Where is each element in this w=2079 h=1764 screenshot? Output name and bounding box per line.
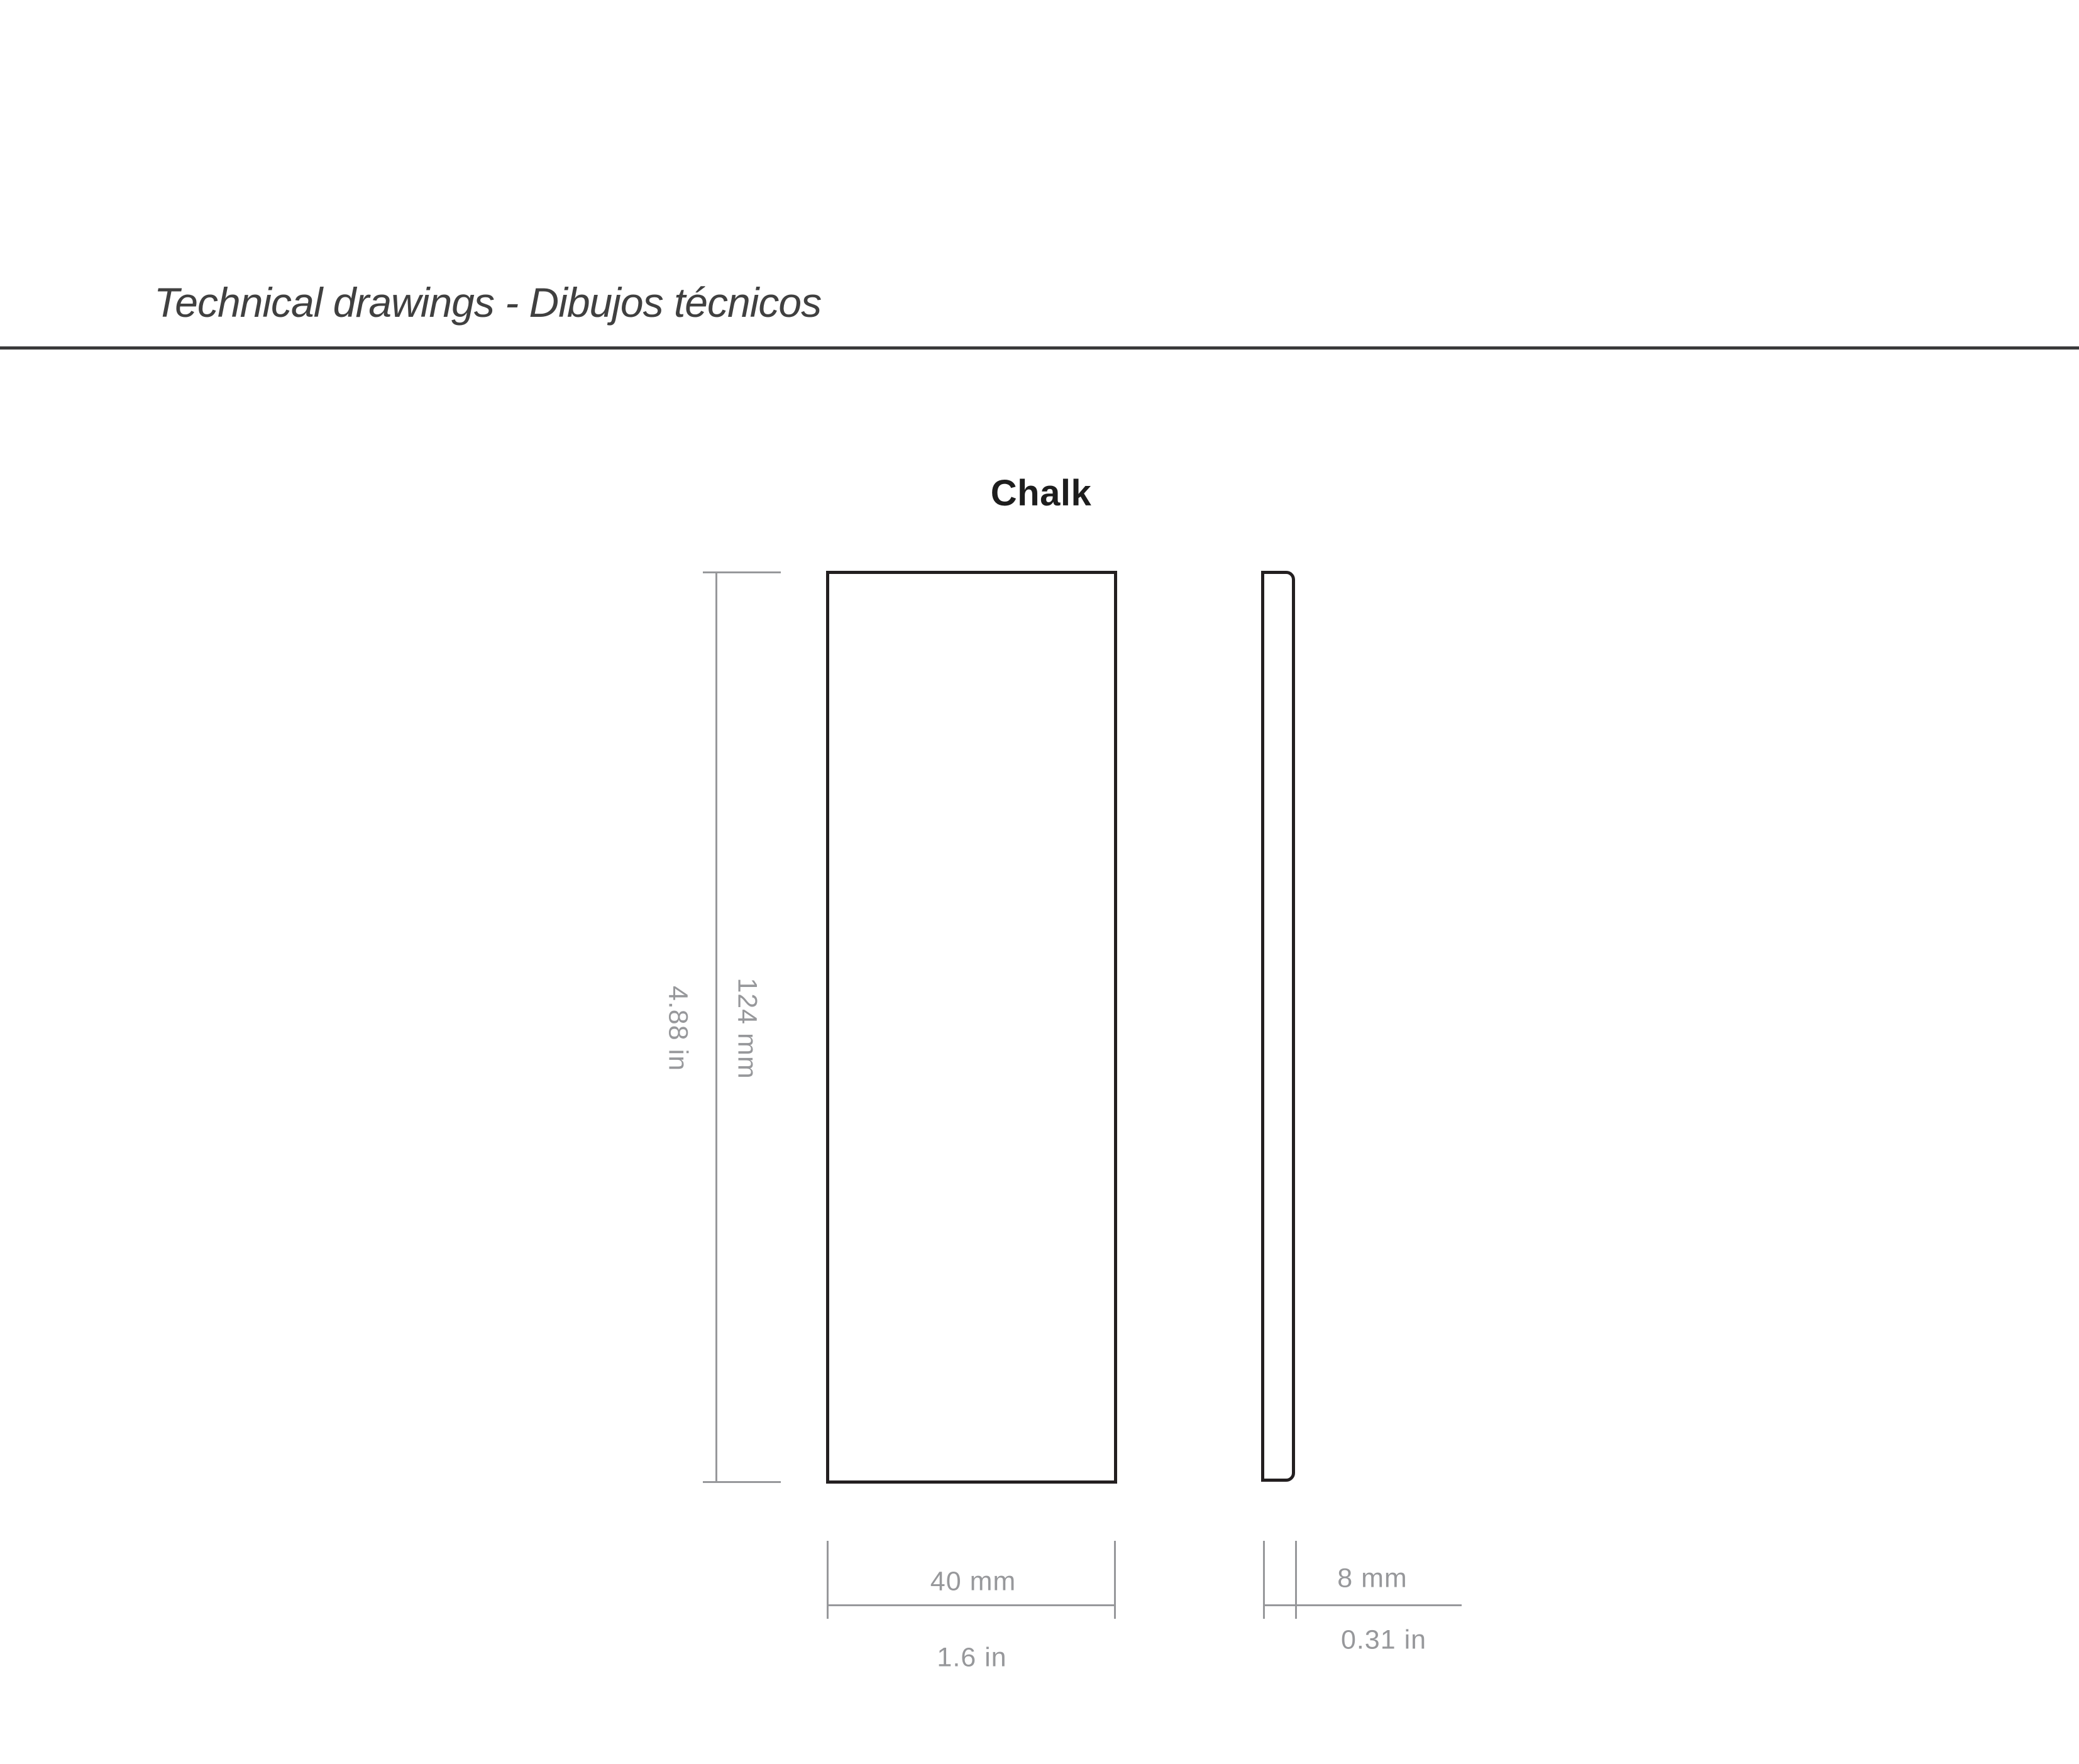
product-name: Chalk bbox=[991, 475, 1091, 512]
front-view-outline bbox=[826, 571, 1117, 1484]
thickness-dimension-extension-right bbox=[1295, 1541, 1297, 1619]
width-dimension-extension-left bbox=[827, 1541, 829, 1619]
height-label-mm: 124 mm bbox=[734, 978, 761, 1079]
header-divider-line bbox=[0, 346, 2079, 350]
width-dimension-line bbox=[827, 1604, 1116, 1606]
height-dimension-tick-top bbox=[703, 571, 781, 573]
page-title: Technical drawings - Dibujos técnicos bbox=[154, 282, 821, 323]
width-dimension-extension-right bbox=[1114, 1541, 1116, 1619]
height-dimension-line bbox=[715, 573, 717, 1482]
height-label-in: 4.88 in bbox=[665, 986, 692, 1071]
side-view-outline bbox=[1261, 571, 1295, 1482]
height-dimension-tick-bottom bbox=[703, 1481, 781, 1483]
thickness-dimension-line bbox=[1263, 1604, 1462, 1606]
width-label-mm: 40 mm bbox=[930, 1568, 1016, 1596]
thickness-label-mm: 8 mm bbox=[1337, 1565, 1408, 1592]
technical-drawing-page: Technical drawings - Dibujos técnicos Ch… bbox=[0, 0, 2079, 1764]
width-label-in: 1.6 in bbox=[937, 1645, 1006, 1672]
thickness-label-in: 0.31 in bbox=[1341, 1627, 1426, 1654]
thickness-dimension-extension-left bbox=[1263, 1541, 1265, 1619]
